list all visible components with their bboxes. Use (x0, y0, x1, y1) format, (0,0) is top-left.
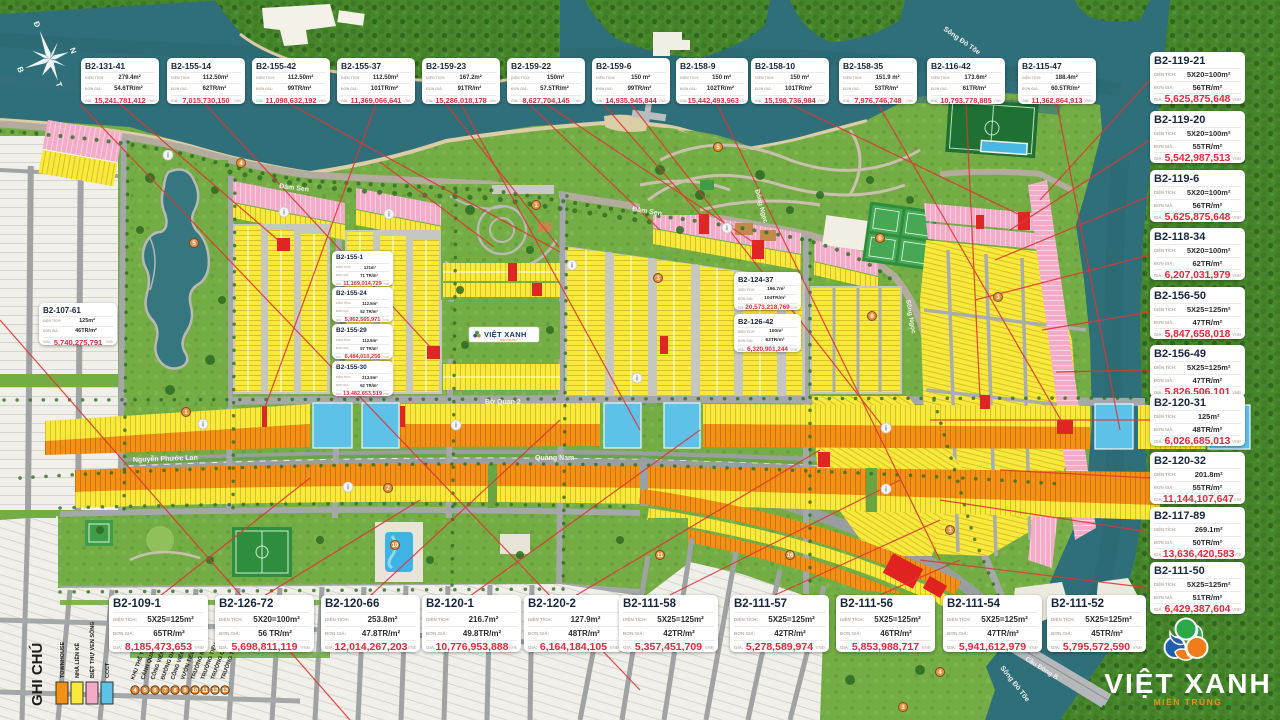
svg-text:11: 11 (202, 688, 208, 694)
svg-text:VIỆT XANH: VIỆT XANH (1104, 668, 1271, 699)
svg-text:12: 12 (212, 688, 218, 694)
svg-text:9: 9 (183, 688, 186, 694)
svg-text:10: 10 (392, 543, 399, 549)
svg-text:Bờ Quan 2: Bờ Quan 2 (485, 399, 521, 406)
svg-text:i: i (347, 485, 349, 492)
svg-text:10: 10 (192, 688, 198, 694)
svg-text:GHI CHÚ: GHI CHÚ (28, 643, 46, 706)
svg-text:CCCT: CCCT (105, 662, 111, 678)
svg-text:11: 11 (657, 553, 664, 559)
svg-text:i: i (283, 210, 285, 217)
svg-text:i: i (388, 212, 390, 219)
svg-text:8: 8 (173, 688, 176, 694)
svg-text:i: i (167, 153, 169, 160)
svg-text:i: i (202, 422, 204, 429)
svg-text:i: i (885, 487, 887, 494)
svg-text:5: 5 (143, 688, 146, 694)
svg-text:Quảng Nam: Quảng Nam (535, 455, 574, 462)
svg-text:7: 7 (163, 688, 166, 694)
svg-text:i: i (636, 376, 638, 383)
svg-text:i: i (726, 226, 728, 233)
svg-text:16: 16 (787, 553, 794, 559)
svg-text:i: i (571, 263, 573, 270)
svg-text:NHÀ LIỀN KỀ: NHÀ LIỀN KỀ (74, 643, 81, 678)
svg-text:i: i (455, 423, 457, 430)
svg-text:MIỀN TRUNG: MIỀN TRUNG (1154, 697, 1223, 707)
svg-text:BIỆT THỰ VEN SÔNG: BIỆT THỰ VEN SÔNG (88, 621, 96, 678)
svg-text:VIỆT XANH: VIỆT XANH (484, 330, 527, 339)
svg-text:6: 6 (153, 688, 156, 694)
svg-text:i: i (885, 426, 887, 433)
svg-text:13: 13 (222, 688, 228, 694)
svg-text:TOWNHOUSE: TOWNHOUSE (60, 641, 66, 678)
